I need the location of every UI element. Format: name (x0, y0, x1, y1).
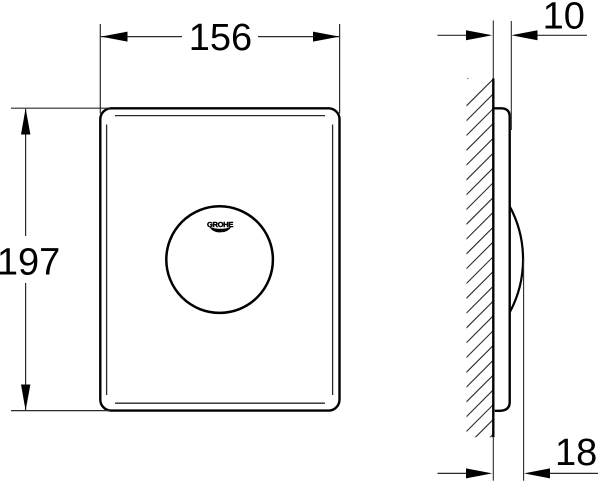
svg-text:18: 18 (555, 432, 597, 474)
svg-text:156: 156 (189, 17, 252, 59)
svg-text:197: 197 (0, 241, 60, 283)
svg-text:10: 10 (543, 0, 585, 38)
